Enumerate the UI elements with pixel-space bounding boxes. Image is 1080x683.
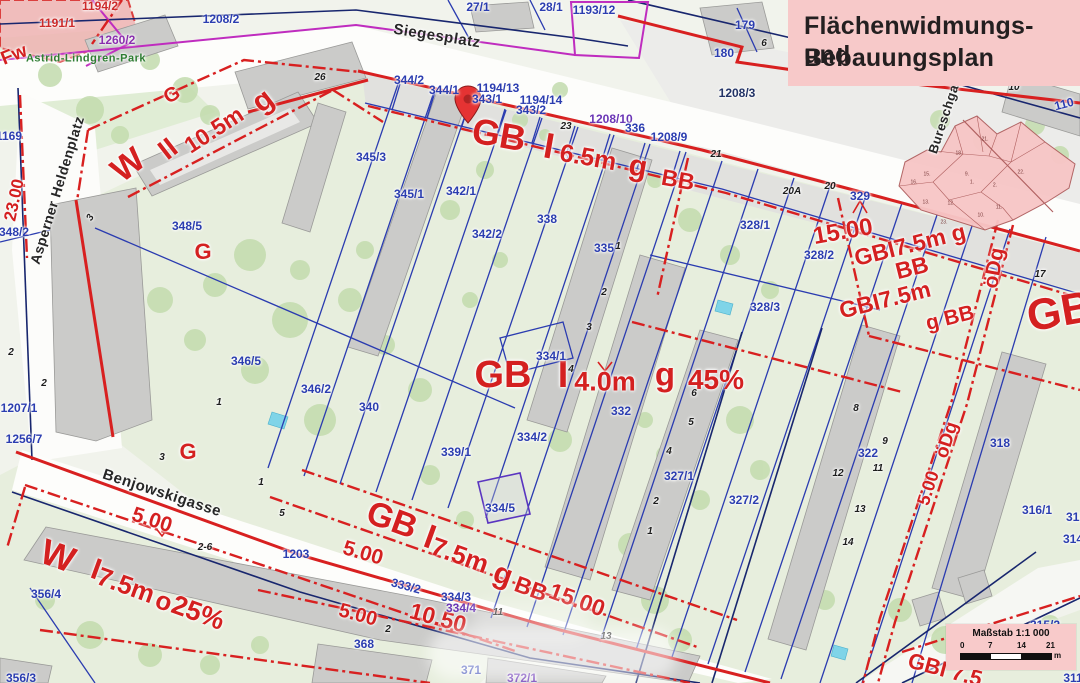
- parcel-label-346-5: 346/5: [231, 355, 261, 367]
- parcel-label-346-2: 346/2: [301, 383, 331, 395]
- parcel-label-339-1: 339/1: [441, 446, 471, 458]
- zone-label-gb: GB: [362, 495, 422, 544]
- inset-num-label-21-: 21.: [982, 138, 989, 143]
- zone-label-5-00: 5.00: [337, 600, 380, 629]
- parcel-label-316-1: 316/1: [1022, 504, 1052, 516]
- zone-label-g: g: [247, 84, 280, 119]
- parcel-label-356-3: 356/3: [6, 672, 36, 683]
- house-label-11: 11: [873, 464, 883, 474]
- zone-label-4-0m: 4.0m: [574, 369, 636, 396]
- house-label-21: 21: [710, 150, 721, 160]
- inset-num-label-12-: 12.: [948, 202, 955, 207]
- zone-label-5-00: 5.00: [914, 469, 942, 508]
- house-label-20a: 20A: [783, 187, 801, 197]
- scale-tick-7: 7: [988, 641, 992, 650]
- street-label-siegesplatz: Siegesplatz: [392, 22, 481, 51]
- zone-label-g: g: [655, 358, 675, 391]
- house-label-2: 2: [601, 288, 607, 298]
- house-label-4: 4: [666, 447, 672, 457]
- map-label-layer: SiegesplatzAsperner HeldenplatzBenjowski…: [0, 0, 1080, 683]
- parcel-label-345-1: 345/1: [394, 188, 424, 200]
- zone-label-w: W: [36, 533, 80, 578]
- inset-num-label-15-: 15.: [924, 173, 931, 178]
- parcel-label-356-4: 356/4: [31, 588, 61, 600]
- house-label-23: 23: [560, 122, 571, 132]
- parcel-label-342-2: 342/2: [472, 228, 502, 240]
- house-label-17: 17: [1034, 270, 1045, 280]
- house-label-13: 13: [854, 505, 865, 515]
- house-label-1: 1: [647, 527, 653, 537]
- house-label-12: 12: [832, 469, 843, 479]
- street-label-astrid-lindgren-park: Astrid-Lindgren-Park: [26, 54, 146, 65]
- parcel-label-110: 110: [1053, 96, 1075, 113]
- zone-label-g: G: [194, 241, 211, 263]
- inset-num-label-11-: 11.: [996, 206, 1003, 211]
- zoning-map-canvas[interactable]: SiegesplatzAsperner HeldenplatzBenjowski…: [0, 0, 1080, 683]
- parcel-label-335: 335: [594, 242, 614, 254]
- house-label-5: 5: [688, 418, 694, 428]
- parcel-label-332: 332: [611, 405, 631, 417]
- parcel-label-333-2: 333/2: [390, 576, 422, 595]
- zone-label-ii: II: [153, 133, 183, 165]
- parcel-label-334-2: 334/2: [517, 431, 547, 443]
- house-label-5: 5: [279, 509, 285, 519]
- scale-bar: [960, 653, 1052, 660]
- parcel-label-1256-7: 1256/7: [6, 433, 43, 445]
- house-label-2: 2: [41, 379, 47, 389]
- zone-label-gbi7-5m: GBI7.5m: [837, 278, 933, 323]
- inset-num-label-9-: 9.: [965, 173, 969, 178]
- parcel-label-27-1: 27/1: [466, 1, 489, 13]
- parcel-label-336: 336: [625, 122, 645, 134]
- scale-unit: m: [1054, 651, 1061, 660]
- house-label-4: 4: [568, 365, 574, 375]
- zone-label-g: g: [626, 151, 649, 184]
- parcel-label-28-1: 28/1: [539, 1, 562, 13]
- parcel-label-1207-1: 1207/1: [1, 402, 38, 414]
- parcel-label-338: 338: [537, 213, 557, 225]
- plan-title-line2: Bebauungsplan: [804, 44, 994, 73]
- parcel-label-179: 179: [735, 19, 755, 31]
- inset-num-label-18-: 18.: [956, 152, 963, 157]
- zone-label-i: I: [541, 127, 557, 164]
- zone-label-5-00: 5.00: [129, 504, 174, 537]
- scale-tick-0: 0: [960, 641, 964, 650]
- house-label-3: 3: [85, 213, 96, 223]
- inset-num-label-1-: 1.: [970, 181, 974, 186]
- zone-label-5-00: 5.00: [340, 537, 385, 568]
- parcel-label-1208-3: 1208/3: [719, 87, 756, 99]
- zone-label-gb: GB: [1024, 285, 1080, 340]
- parcel-label-314: 314: [1063, 533, 1080, 545]
- inset-num-label-23-: 23.: [941, 221, 948, 226]
- house-label-1: 1: [216, 398, 222, 408]
- inset-num-label-2-: 2.: [993, 184, 997, 189]
- scale-tick-21: 21: [1046, 641, 1055, 650]
- parcel-label-1208-9: 1208/9: [651, 131, 688, 143]
- parcel-label-328-2: 328/2: [804, 249, 834, 261]
- house-label-2: 2: [8, 348, 14, 358]
- zone-label--dg: öDg: [932, 419, 961, 460]
- zone-label-7-5m: 7.5m: [94, 563, 159, 608]
- house-label-2-6: 2-6: [198, 543, 212, 553]
- house-label-6: 6: [761, 39, 767, 49]
- zone-label-fw: Fw: [0, 41, 30, 69]
- parcel-label-345-3: 345/3: [356, 151, 386, 163]
- zone-label--dg: öDg: [980, 246, 1008, 290]
- inset-num-label-16-: 16.: [911, 181, 918, 186]
- parcel-label-1169: 1169: [0, 130, 22, 142]
- inset-num-label-10-: 10.: [978, 214, 985, 219]
- house-label-3: 3: [586, 323, 592, 333]
- parcel-label-368: 368: [354, 638, 374, 650]
- parcel-label-1191-1: 1191/1: [39, 17, 75, 29]
- parcel-label-334-1: 334/1: [536, 350, 566, 362]
- parcel-label-318: 318: [990, 437, 1010, 449]
- parcel-label-343-1: 343/1: [472, 93, 502, 105]
- parcel-label-348-5: 348/5: [172, 220, 202, 232]
- parcel-label-328-3: 328/3: [750, 301, 780, 313]
- parcel-label-1260-2: 1260/2: [99, 34, 136, 46]
- parcel-label-334-5: 334/5: [485, 502, 515, 514]
- parcel-label-1193-12: 1193/12: [573, 4, 616, 16]
- parcel-label-329: 329: [850, 190, 870, 202]
- house-label-2: 2: [653, 497, 659, 507]
- house-label-20: 20: [824, 182, 835, 192]
- scale-ticks: 0 7 14 21: [960, 641, 1064, 651]
- zone-label-w: W: [105, 142, 151, 189]
- parcel-label-344-1: 344/1: [429, 84, 459, 96]
- house-label-6: 6: [691, 389, 697, 399]
- scale-title: Maßstab 1:1 000: [946, 628, 1076, 639]
- parcel-label-348-2: 348/2: [0, 226, 29, 238]
- house-label-1: 1: [258, 478, 264, 488]
- parcel-label-342-1: 342/1: [446, 185, 476, 197]
- parcel-label-340: 340: [359, 401, 379, 413]
- house-label-3: 3: [159, 453, 165, 463]
- zone-label-gb: GB: [469, 113, 528, 158]
- parcel-label-1208-2: 1208/2: [203, 13, 240, 25]
- parcel-label-322: 322: [858, 447, 878, 459]
- parcel-label-328-1: 328/1: [740, 219, 770, 231]
- parcel-label-180: 180: [714, 47, 734, 59]
- zone-label-g: G: [179, 441, 196, 463]
- house-label-2: 2: [385, 625, 391, 635]
- plan-title-box: Flächenwidmungs- und Bebauungsplan: [788, 0, 1080, 86]
- zone-label-g: g: [489, 558, 516, 592]
- house-label-26: 26: [314, 73, 325, 83]
- house-label-14: 14: [842, 538, 853, 548]
- zone-label-10-5m: 10.5m: [180, 103, 247, 158]
- parcel-label-327-1: 327/1: [664, 470, 694, 482]
- parcel-label-311: 311: [1063, 672, 1080, 683]
- house-label-1: 1: [615, 242, 621, 252]
- zone-label-25-: 25%: [168, 591, 228, 635]
- scale-box: Maßstab 1:1 000 0 7 14 21 m: [946, 624, 1076, 670]
- parcel-label-327-2: 327/2: [729, 494, 759, 506]
- house-label-9: 9: [882, 437, 888, 447]
- zone-label-23-00: 23.00: [1, 177, 26, 222]
- parcel-label-1194-2: 1194/2: [82, 0, 118, 12]
- inset-num-label-22-: 22.: [1018, 171, 1025, 176]
- zone-label-bb: BB: [660, 166, 697, 194]
- scale-tick-14: 14: [1017, 641, 1026, 650]
- photo-watermark-small: [470, 600, 590, 640]
- parcel-label-344-2: 344/2: [394, 74, 424, 86]
- zone-label-gb: GB: [475, 356, 532, 394]
- inset-num-label-13-: 13.: [923, 201, 930, 206]
- parcel-label-1203: 1203: [283, 548, 310, 560]
- house-label-8: 8: [853, 404, 859, 414]
- zone-label-6-5m: 6.5m: [558, 141, 618, 176]
- parcel-label-312: 312: [1066, 511, 1080, 523]
- street-label-asperner-heldenplatz: Asperner Heldenplatz: [28, 114, 86, 265]
- zone-label-g: G: [160, 82, 183, 107]
- zone-label-g-bb: g BB: [924, 302, 977, 334]
- zone-label-7-5m: 7.5m: [428, 533, 493, 578]
- parcel-label-343-2: 343/2: [516, 104, 546, 116]
